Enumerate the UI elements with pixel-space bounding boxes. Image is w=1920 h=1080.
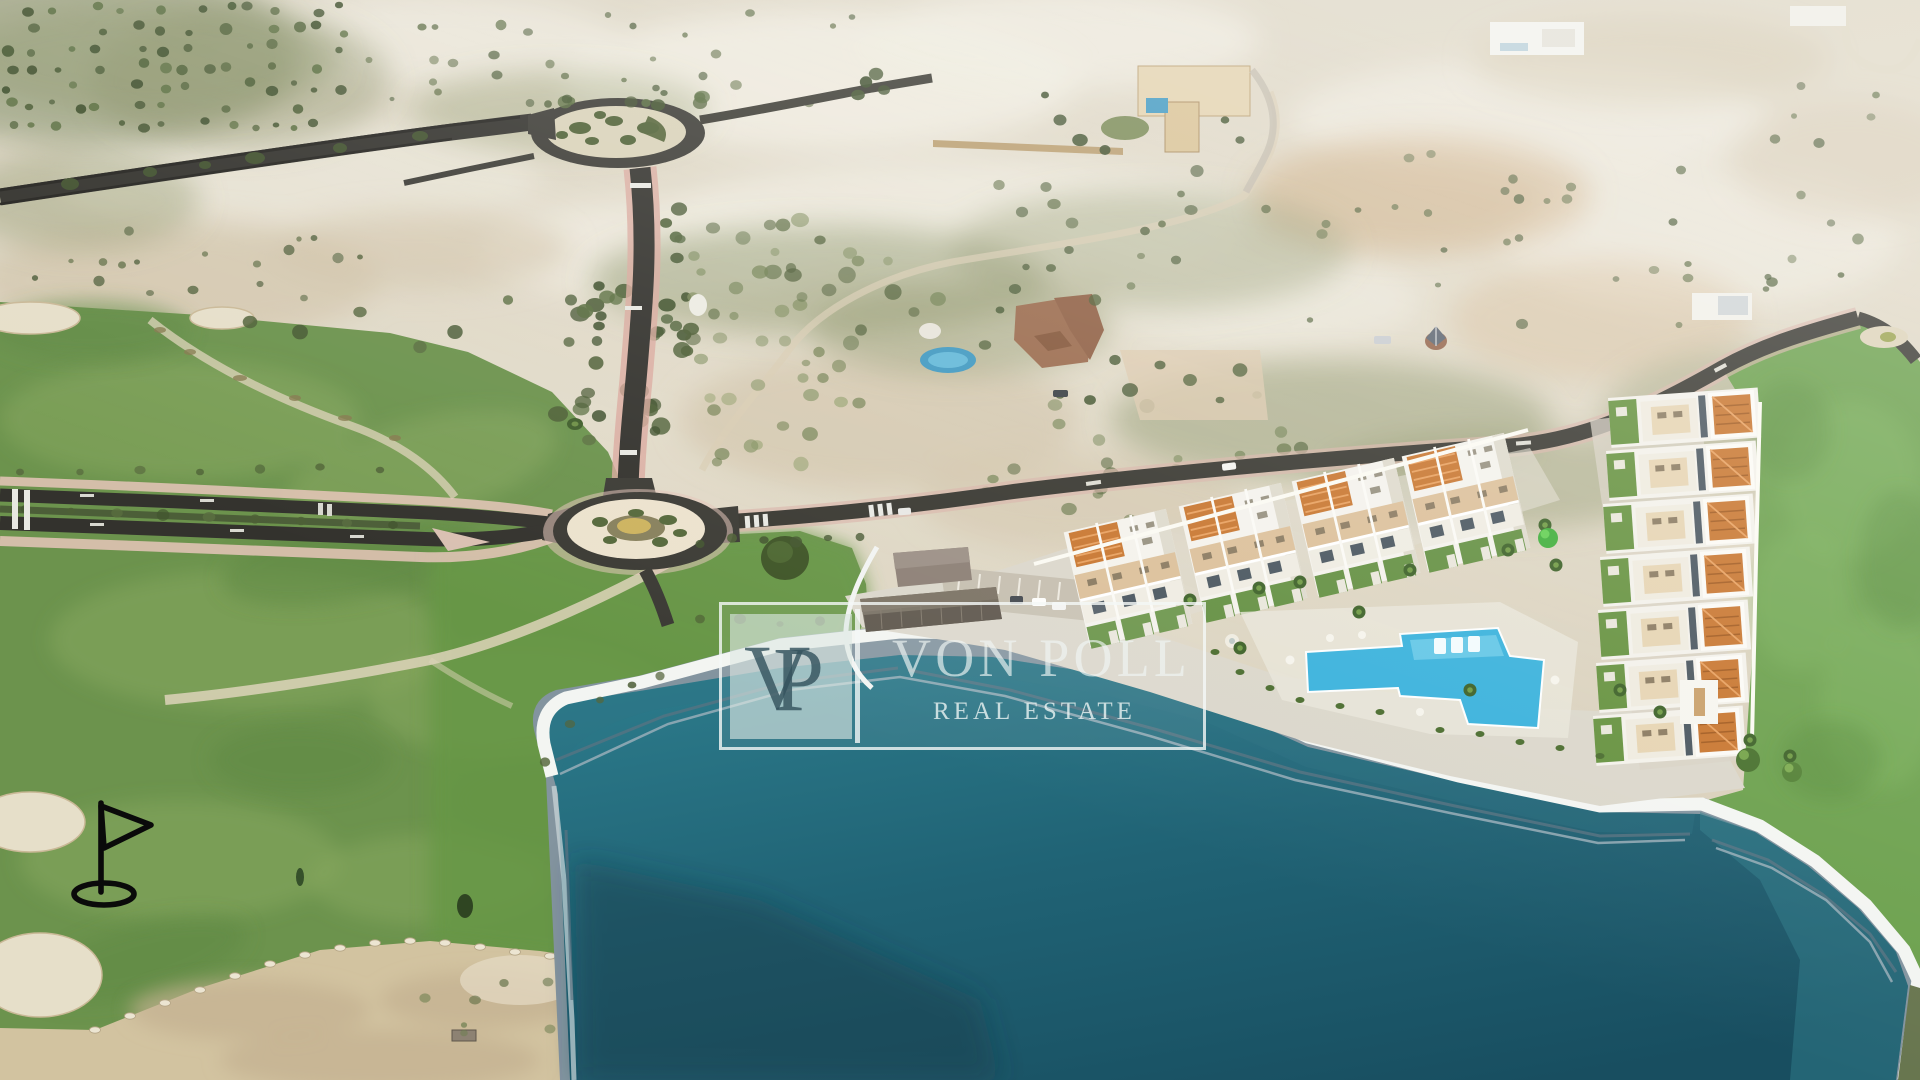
svg-text:P: P xyxy=(773,628,824,730)
svg-text:REAL ESTATE: REAL ESTATE xyxy=(933,698,1136,725)
svg-text:VON POLL: VON POLL xyxy=(892,628,1191,688)
